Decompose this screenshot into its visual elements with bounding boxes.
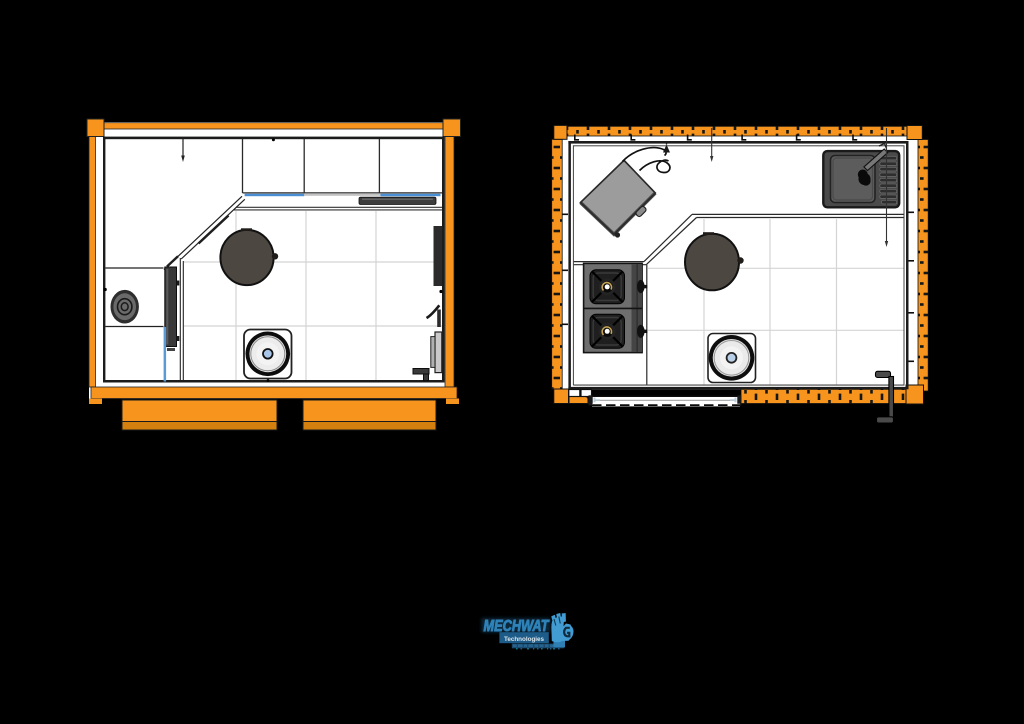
svg-text:Technologies: Technologies: [504, 636, 545, 643]
